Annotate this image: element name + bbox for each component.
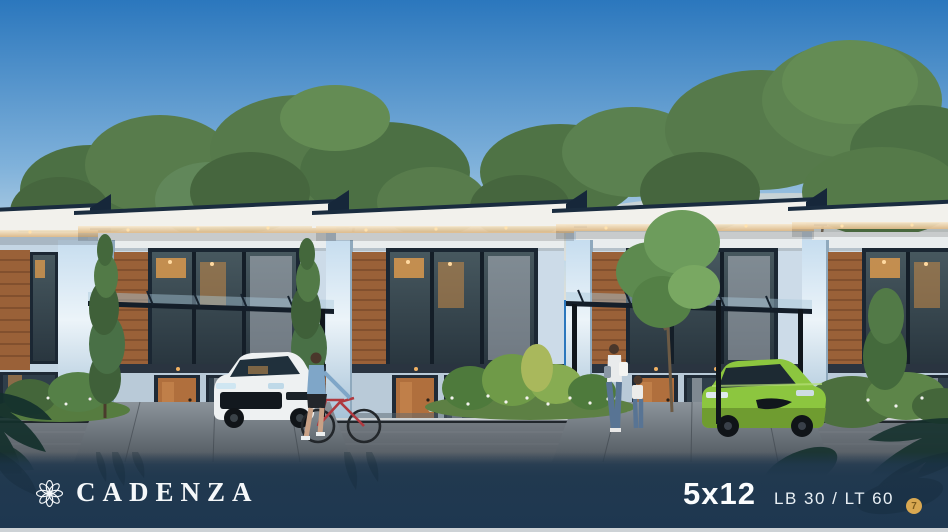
page-number-badge: 7 [906,498,922,514]
building-land-area-label: LB 30 / LT 60 [774,490,894,507]
spec-group: 5x12 LB 30 / LT 60 7 [683,478,922,509]
carport-post [716,300,721,424]
unit-size-label: 5x12 [683,478,756,509]
eight-petal-flower-icon [36,480,63,507]
brand-group: CADENZA [36,480,259,507]
brand-name: CADENZA [76,479,259,506]
footer-bar: CADENZA 5x12 LB 30 / LT 60 7 [0,452,948,528]
brochure-page: CADENZA 5x12 LB 30 / LT 60 7 [0,0,948,532]
bottom-edge-strip [0,528,948,532]
